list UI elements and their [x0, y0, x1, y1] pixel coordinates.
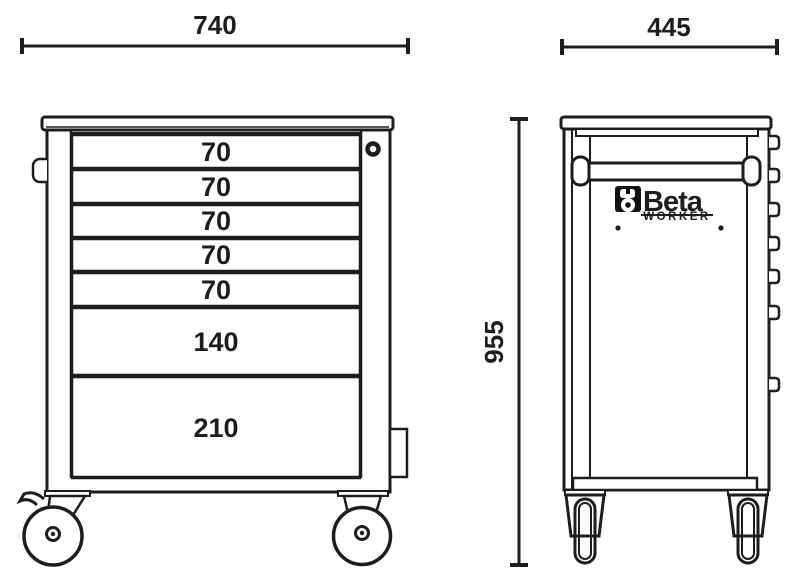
- beta-wrench-icon-hole: [625, 202, 631, 208]
- dimension-front-width: 740: [22, 10, 408, 54]
- screw-dot-left: [615, 225, 620, 230]
- drawer-height-label: 70: [201, 206, 231, 236]
- dimension-value-height: 955: [479, 320, 509, 363]
- worktop: [42, 117, 393, 130]
- caster-side-right-icon: [728, 490, 768, 563]
- handle-end-cap-left: [572, 157, 589, 185]
- caster-front-left-icon: [20, 491, 90, 565]
- side-view: Beta WORKER: [561, 117, 779, 563]
- handle-end-cap-right: [743, 157, 760, 185]
- handle-bar: [580, 163, 752, 180]
- drawer-height-label: 70: [201, 137, 231, 167]
- drawer-height-label: 70: [201, 240, 231, 270]
- drawer-height-label: 70: [201, 172, 231, 202]
- drawer-row-3: 70: [72, 205, 360, 237]
- drawer-row-7: 210: [72, 377, 360, 477]
- wheel-axle: [51, 532, 55, 536]
- beta-wrench-icon-notch: [626, 188, 630, 194]
- hook-icon: [769, 378, 779, 391]
- hook-icon: [769, 237, 779, 250]
- series-name: WORKER: [643, 211, 710, 223]
- dimension-side-depth: 445: [562, 12, 777, 55]
- hook-icon: [769, 203, 779, 216]
- hook-icon: [769, 270, 779, 283]
- caster-side-left-icon: [565, 490, 605, 563]
- drawer-height-label: 70: [201, 275, 231, 305]
- worktop-lip: [576, 129, 758, 136]
- technical-drawing-page: 740 445 955 70 70: [0, 0, 800, 578]
- wheel-axle: [360, 531, 364, 535]
- brake-lever-icon: [20, 493, 44, 505]
- drawer-row-2: 70: [72, 170, 360, 203]
- hook-icon: [769, 169, 779, 182]
- cabinet-body: [564, 129, 769, 490]
- hook-icon: [769, 136, 779, 149]
- side-accessory-box: [390, 429, 407, 477]
- dimension-value-side-depth: 445: [647, 12, 690, 42]
- drawer-row-6: 140: [72, 308, 360, 375]
- hook-icon: [769, 306, 779, 319]
- lock-icon: [368, 144, 379, 155]
- screw-dot-right: [718, 225, 723, 230]
- kick-bar: [573, 478, 757, 490]
- dimension-value-front-width: 740: [193, 10, 236, 40]
- drawer-row-1: 70: [72, 135, 360, 168]
- caster-front-right-icon: [334, 491, 391, 565]
- front-view: 70 70 70 70 70 140 210: [20, 117, 407, 565]
- drawer-height-label: 140: [193, 327, 238, 357]
- worktop: [561, 117, 771, 129]
- side-latch-tab: [33, 159, 47, 182]
- drawer-row-4: 70: [72, 239, 360, 271]
- drawer-height-label: 210: [193, 413, 238, 443]
- tool-trolley-dimension-drawing: 740 445 955 70 70: [0, 0, 800, 578]
- dimension-height: 955: [479, 119, 528, 565]
- drawer-row-5: 70: [72, 273, 360, 306]
